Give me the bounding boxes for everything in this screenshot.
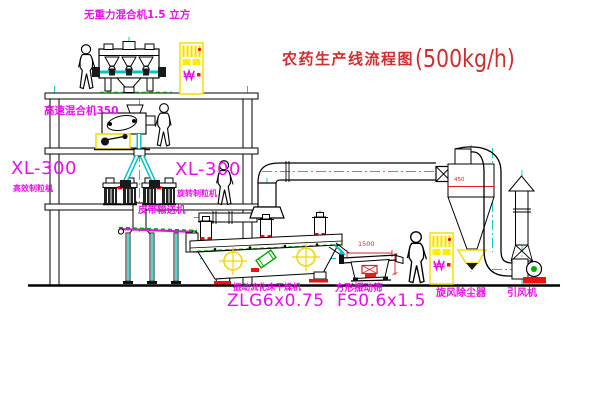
control-cabinet-top [180, 43, 203, 94]
label-fan: 引风机 [507, 289, 537, 299]
worker-figure [407, 232, 426, 283]
dimension-cyclone-outlet: 450 [454, 178, 465, 184]
fluid-bed-dryer [186, 213, 349, 285]
title-capacity: (500kg/h) [415, 44, 515, 73]
gravity-free-mixer [92, 42, 166, 93]
label-cyclone: 旋风除尘器 [436, 289, 486, 299]
vibrating-screen [339, 250, 403, 282]
belt-conveyor [118, 228, 197, 285]
title-chinese: 农药生产线流程图 [282, 48, 414, 69]
label-high-speed-mixer: 高速混合机350 [44, 106, 118, 117]
process-flow-diagram: 农药生产线流程图 (500kg/h) 无重力混合机1.5 立方 高速混合机350… [0, 0, 600, 403]
label-granulator-left-model: XL-300 [11, 160, 77, 178]
label-granulator-left-name: 高效制粒机 [13, 185, 53, 193]
label-dryer-model: ZLG6x0.75 [227, 293, 325, 310]
label-granulator-center-name: 旋转制粒机 [177, 190, 217, 198]
y-feed-pipe [120, 149, 160, 188]
label-gravity-mixer: 无重力混合机1.5 立方 [84, 10, 190, 21]
cyclone-discharge [458, 250, 486, 263]
label-screen-model: FS0.6x1.5 [337, 293, 426, 310]
control-cabinet-right [430, 233, 453, 284]
exhaust-duct [250, 161, 451, 218]
diagram-title: 农药生产线流程图 (500kg/h) [282, 44, 537, 73]
worker-figure [155, 104, 171, 146]
exhaust-stack [509, 176, 534, 261]
cyclone-separator [448, 149, 494, 270]
dimension-screen-length: 1500 [358, 241, 375, 248]
worker-figure [79, 45, 95, 89]
induced-draft-fan [512, 259, 546, 284]
label-belt-conveyor: 皮带输送机 [138, 206, 186, 216]
label-granulator-center-model: XL-300 [175, 161, 241, 179]
